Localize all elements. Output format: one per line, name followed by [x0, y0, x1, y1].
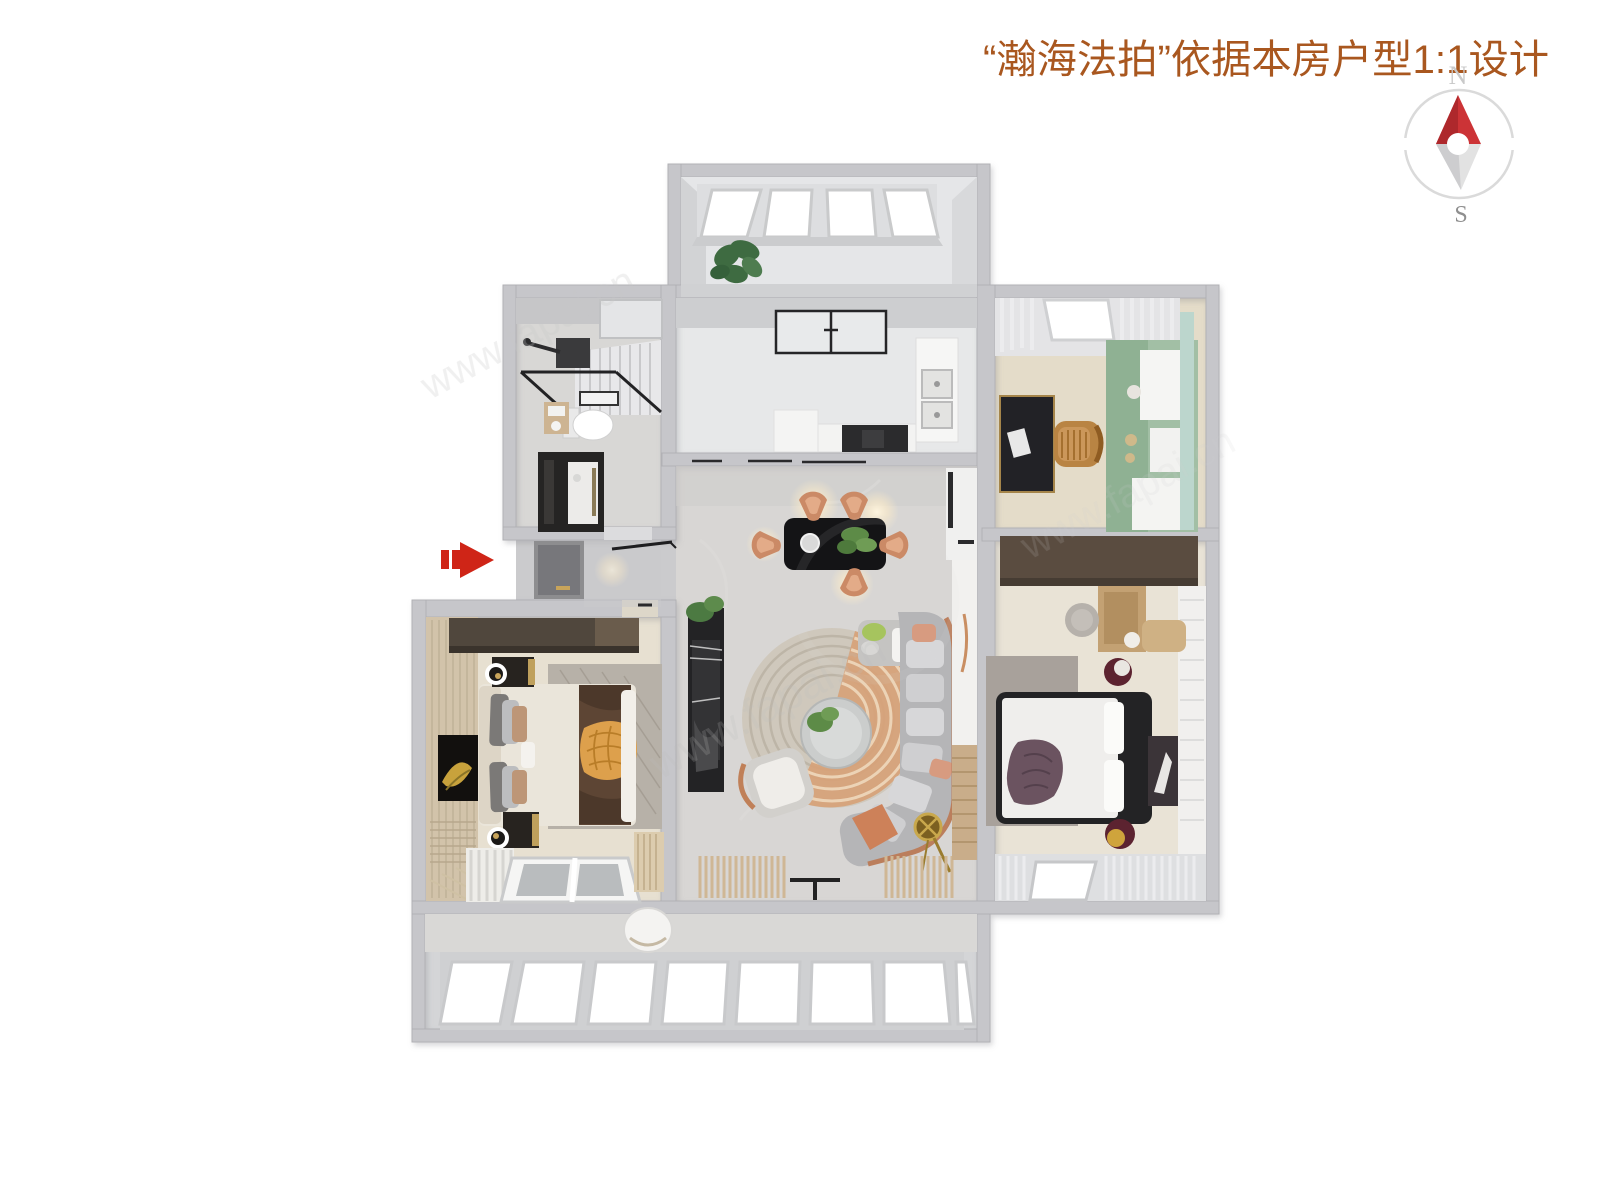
svg-text:N: N	[1449, 61, 1468, 90]
svg-text:S: S	[1454, 202, 1467, 228]
